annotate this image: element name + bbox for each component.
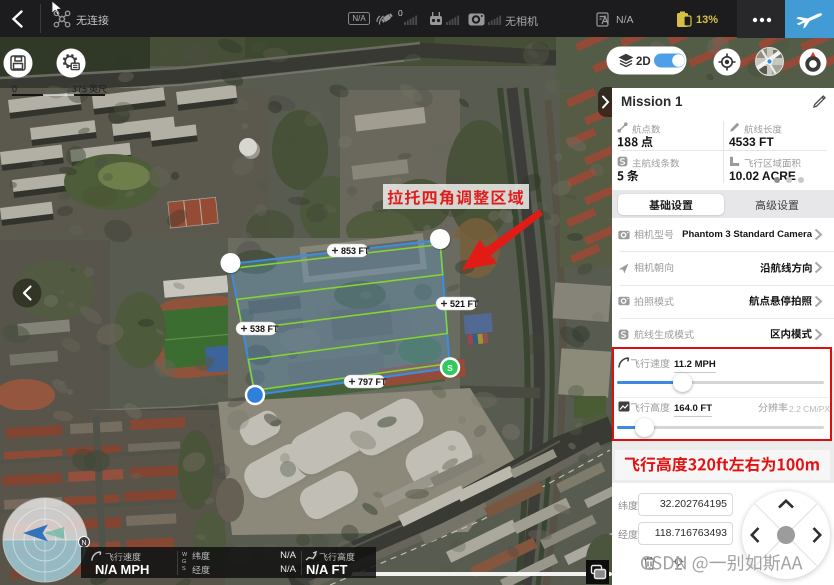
svg-text:521 FT: 521 FT (450, 299, 479, 309)
svg-text:N: N (81, 540, 86, 547)
svg-text:797 FT: 797 FT (358, 377, 387, 387)
svg-text:538 FT: 538 FT (250, 324, 279, 334)
svg-text:S: S (447, 363, 453, 373)
svg-text:2D: 2D (636, 56, 651, 68)
svg-text:853 FT: 853 FT (341, 246, 370, 256)
